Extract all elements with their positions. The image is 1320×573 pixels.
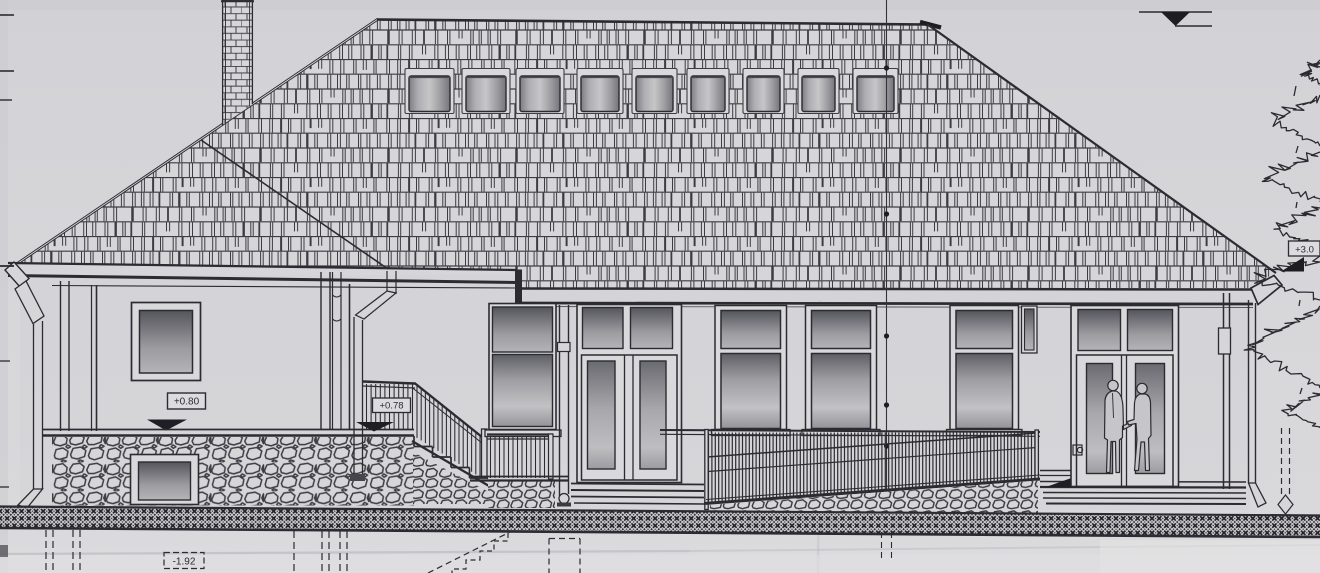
svg-text:+0.78: +0.78	[379, 401, 403, 412]
svg-text:-1.92: -1.92	[173, 557, 196, 568]
svg-text:+3.0: +3.0	[1295, 245, 1314, 256]
svg-text:+0.80: +0.80	[174, 397, 200, 408]
